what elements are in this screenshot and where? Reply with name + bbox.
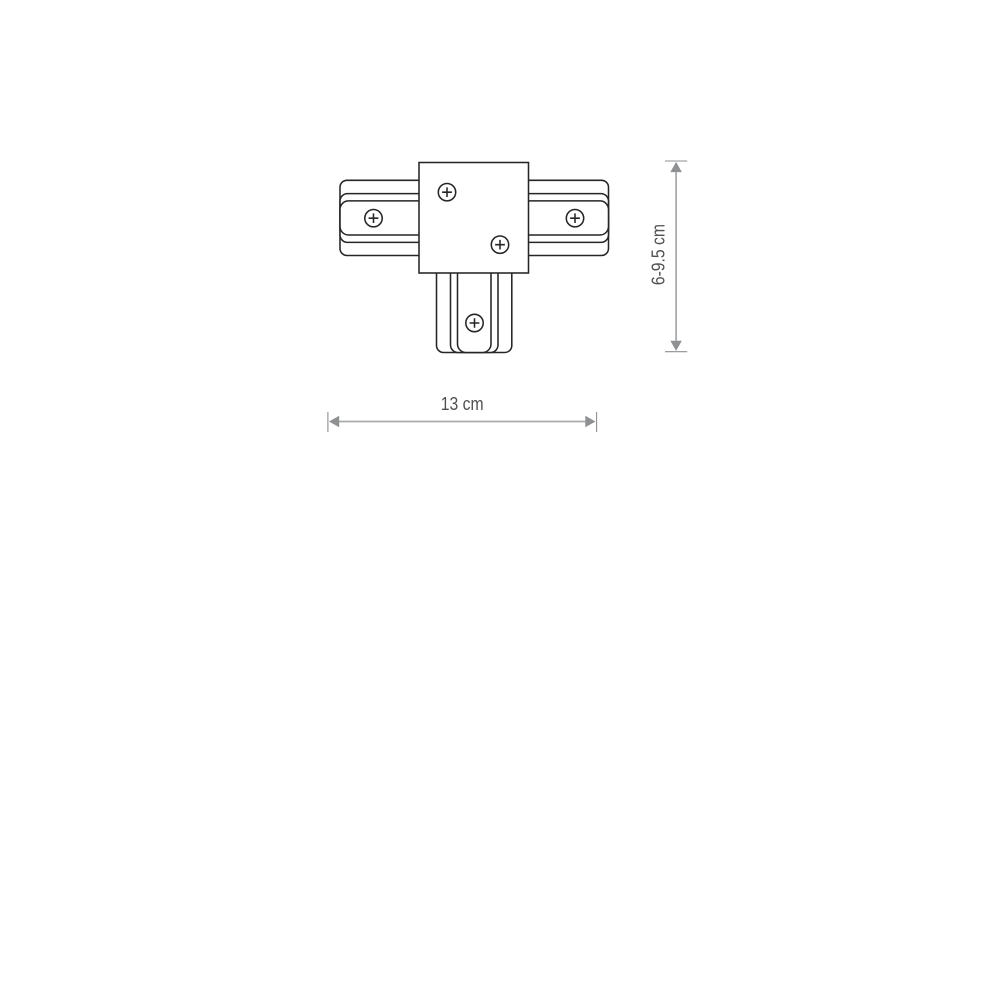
svg-text:6-9.5 cm: 6-9.5 cm (647, 224, 669, 285)
svg-text:13 cm: 13 cm (441, 393, 484, 415)
